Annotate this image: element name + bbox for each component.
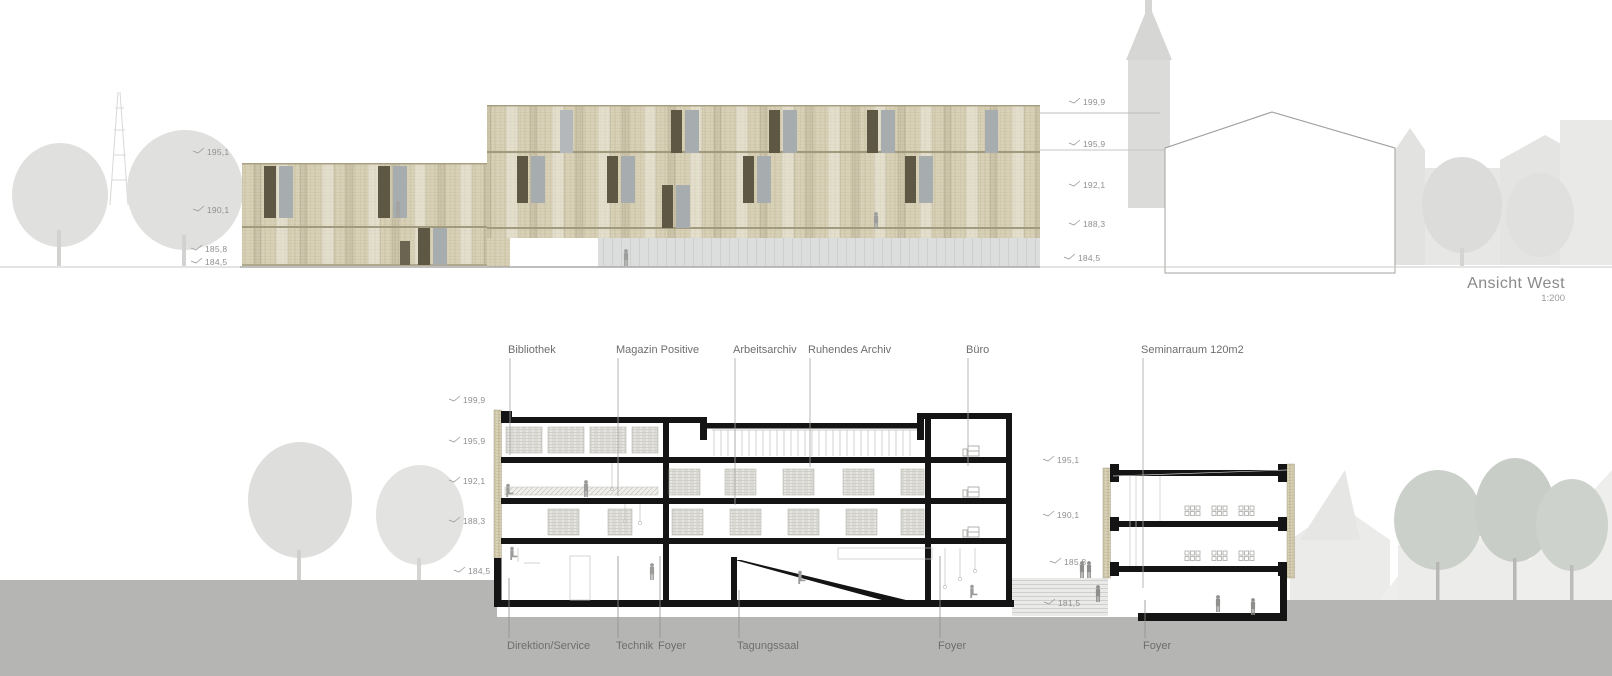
elevation-mark: 195,1 [207,147,229,157]
elevation-mark: 185,8 [205,244,227,254]
room-label: Seminarraum 120m2 [1141,344,1244,356]
elevation-mark: 185,8 [1064,557,1086,567]
room-label: Magazin Positive [616,344,699,356]
elevation-mark: 199,9 [463,395,485,405]
elevation-left-wing [242,163,488,266]
drawing-scale: 1:200 [1541,293,1565,304]
drawing-title: Ansicht West [1467,275,1565,292]
elevation-mark: 195,9 [1083,139,1105,149]
mast-silhouette [110,92,128,205]
elevation-mark: 188,3 [463,516,485,526]
section-seminar-building [1080,464,1295,621]
section-drawing: Bibliothek Magazin Positive Arbeitsarchi… [0,344,1612,676]
room-label: Foyer [938,640,966,652]
elevation-main-building [487,105,1040,267]
elevation-west: 195,1 190,1 185,8 184,5 199,9 195,9 192,… [0,0,1612,304]
room-label: Arbeitsarchiv [733,344,797,356]
room-label: Direktion/Service [507,640,590,652]
elevation-mark: 181,5 [1058,598,1080,608]
elevation-mark: 195,1 [1057,455,1079,465]
architectural-drawing-sheet: 195,1 190,1 185,8 184,5 199,9 195,9 192,… [0,0,1612,676]
drawing-canvas: 195,1 190,1 185,8 184,5 199,9 195,9 192,… [0,0,1612,676]
elevation-mark: 192,1 [463,476,485,486]
room-label: Bibliothek [508,344,556,356]
exterior-steps [1012,578,1108,616]
town-silhouette [1395,120,1612,266]
elevation-existing-building [1040,112,1395,273]
room-label: Tagungssaal [737,640,799,652]
elevation-mark: 184,5 [1078,253,1100,263]
elevation-mark: 188,3 [1083,219,1105,229]
room-label: Foyer [1143,640,1171,652]
library-shelving [506,427,658,453]
room-label: Technik [616,640,654,652]
room-label: Foyer [658,640,686,652]
elevation-mark: 199,9 [1083,97,1105,107]
elevation-mark: 192,1 [1083,180,1105,190]
mezzanine-slab [505,487,658,495]
elevation-marks-right: 199,9 195,9 192,1 188,3 184,5 [1064,97,1105,263]
elevation-mark: 184,5 [205,257,227,267]
elevation-mark: 190,1 [207,205,229,215]
elevation-mark: 184,5 [468,566,490,576]
section-labels-top: Bibliothek Magazin Positive Arbeitsarchi… [508,344,1244,356]
room-label: Ruhendes Archiv [808,344,892,356]
elevation-mark: 190,1 [1057,510,1079,520]
room-label: Büro [966,344,989,356]
elevation-mark: 195,9 [463,436,485,446]
section-main-building [494,410,1014,607]
